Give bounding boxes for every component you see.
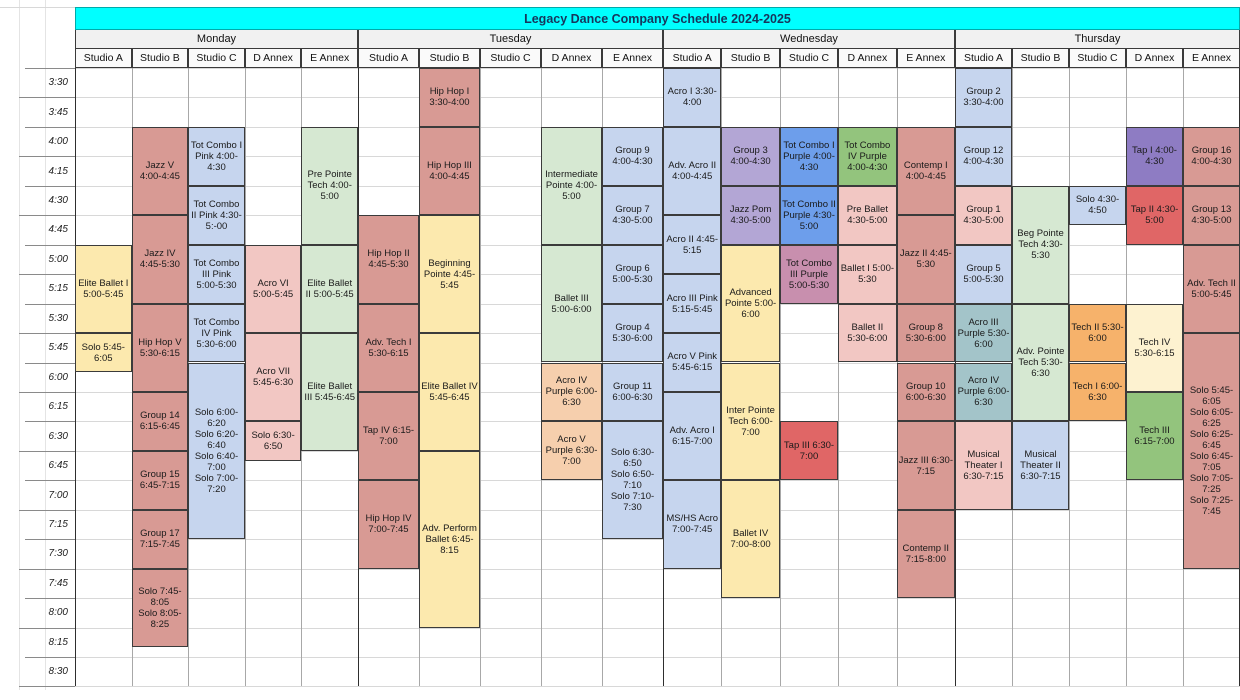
studio-header-monday-3[interactable]: Studio C bbox=[188, 49, 245, 68]
class-block[interactable]: Hip Hop III 4:00-4:45 bbox=[419, 127, 480, 215]
class-block[interactable]: Solo 6:30-6:50 bbox=[245, 421, 302, 460]
time-label[interactable]: 5:45 bbox=[20, 333, 68, 362]
studio-header-wednesday-1[interactable]: Studio A bbox=[663, 49, 721, 68]
class-block[interactable]: Elite Ballet II 5:00-5:45 bbox=[301, 245, 358, 333]
class-block[interactable]: Beginning Pointe 4:45-5:45 bbox=[419, 215, 480, 333]
class-block[interactable]: Group 5 5:00-5:30 bbox=[955, 245, 1012, 304]
class-block[interactable]: Tot Combo IV Purple 4:00-4:30 bbox=[838, 127, 896, 186]
time-label[interactable]: 5:30 bbox=[20, 304, 68, 333]
class-block[interactable]: Advanced Pointe 5:00-6:00 bbox=[721, 245, 779, 363]
class-block[interactable]: Group 9 4:00-4:30 bbox=[602, 127, 663, 186]
class-block[interactable]: Group 3 4:00-4:30 bbox=[721, 127, 779, 186]
class-block[interactable]: Tot Combo IV Pink 5:30-6:00 bbox=[188, 304, 245, 363]
day-header-monday[interactable]: Monday bbox=[75, 30, 358, 49]
class-block[interactable]: Contemp II 7:15-8:00 bbox=[897, 510, 955, 598]
class-block[interactable]: Group 15 6:45-7:15 bbox=[132, 451, 189, 510]
studio-separator bbox=[480, 68, 481, 686]
studio-header-monday-4[interactable]: D Annex bbox=[245, 49, 302, 68]
time-label[interactable]: 5:15 bbox=[20, 274, 68, 303]
class-block[interactable]: Adv. Tech I 5:30-6:15 bbox=[358, 304, 419, 392]
class-block[interactable]: Elite Ballet III 5:45-6:45 bbox=[301, 333, 358, 451]
class-block[interactable]: Group 8 5:30-6:00 bbox=[897, 304, 955, 363]
studio-header-monday-1[interactable]: Studio A bbox=[75, 49, 132, 68]
studio-header-wednesday-5[interactable]: E Annex bbox=[897, 49, 955, 68]
row-line bbox=[75, 569, 1240, 570]
class-block[interactable]: Adv. Acro II 4:00-4:45 bbox=[663, 127, 721, 215]
class-block[interactable]: Tap IV 6:15-7:00 bbox=[358, 392, 419, 480]
class-block[interactable]: Musical Theater II 6:30-7:15 bbox=[1012, 421, 1069, 509]
class-block[interactable]: Tot Combo III Pink 5:00-5:30 bbox=[188, 245, 245, 304]
class-block[interactable]: Acro VII 5:45-6:30 bbox=[245, 333, 302, 421]
class-block[interactable]: Tot Combo II Pink 4:30-5:-00 bbox=[188, 186, 245, 245]
time-label[interactable]: 7:00 bbox=[20, 480, 68, 509]
class-block[interactable]: Acro IV Purple 6:00-6:30 bbox=[541, 363, 602, 422]
class-block[interactable]: Hip Hop V 5:30-6:15 bbox=[132, 304, 189, 392]
class-block[interactable]: Jazz III 6:30-7:15 bbox=[897, 421, 955, 509]
time-label[interactable]: 6:45 bbox=[20, 451, 68, 480]
class-block[interactable]: Jazz V 4:00-4:45 bbox=[132, 127, 189, 215]
class-block[interactable]: Adv. Pointe Tech 5:30-6:30 bbox=[1012, 304, 1069, 422]
class-block[interactable]: Acro V Purple 6:30-7:00 bbox=[541, 421, 602, 480]
row-line bbox=[75, 539, 1240, 540]
time-label[interactable]: 8:00 bbox=[20, 598, 68, 627]
studio-header-tuesday-4[interactable]: D Annex bbox=[541, 49, 602, 68]
class-block[interactable]: Acro III Purple 5:30-6:00 bbox=[955, 304, 1012, 363]
class-block[interactable]: Acro III Pink 5:15-5:45 bbox=[663, 274, 721, 333]
class-block[interactable]: Solo 6:30-6:50 Solo 6:50-7:10 Solo 7:10-… bbox=[602, 421, 663, 539]
class-block[interactable]: Ballet II 5:30-6:00 bbox=[838, 304, 896, 363]
class-block[interactable]: Beg Pointe Tech 4:30-5:30 bbox=[1012, 186, 1069, 304]
time-label[interactable]: 3:30 bbox=[20, 68, 68, 97]
class-block[interactable]: Group 2 3:30-4:00 bbox=[955, 68, 1012, 127]
class-block[interactable]: Acro VI 5:00-5:45 bbox=[245, 245, 302, 333]
day-header-tuesday[interactable]: Tuesday bbox=[358, 30, 663, 49]
row-line bbox=[75, 686, 1240, 687]
studio-header-monday-5[interactable]: E Annex bbox=[301, 49, 358, 68]
class-block[interactable]: Acro I 3:30-4:00 bbox=[663, 68, 721, 127]
studio-header-wednesday-2[interactable]: Studio B bbox=[721, 49, 779, 68]
class-block[interactable]: Ballet III 5:00-6:00 bbox=[541, 245, 602, 363]
time-label[interactable]: 3:45 bbox=[20, 97, 68, 126]
class-block[interactable]: Tech IV 5:30-6:15 bbox=[1126, 304, 1183, 392]
class-block[interactable]: Adv. Tech II 5:00-5:45 bbox=[1183, 245, 1240, 333]
class-block[interactable]: Elite Ballet I 5:00-5:45 bbox=[75, 245, 132, 333]
class-block[interactable]: Group 12 4:00-4:30 bbox=[955, 127, 1012, 186]
row-line bbox=[75, 628, 1240, 629]
class-block[interactable]: Solo 6:00-6:20 Solo 6:20-6:40 Solo 6:40-… bbox=[188, 363, 245, 540]
class-block[interactable]: Jazz IV 4:45-5:30 bbox=[132, 215, 189, 303]
class-block[interactable]: Tech III 6:15-7:00 bbox=[1126, 392, 1183, 480]
class-block[interactable]: Tap I 4:00-4:30 bbox=[1126, 127, 1183, 186]
class-block[interactable]: Contemp I 4:00-4:45 bbox=[897, 127, 955, 215]
time-label[interactable]: 6:00 bbox=[20, 363, 68, 392]
schedule-spreadsheet: Legacy Dance Company Schedule 2024-2025 … bbox=[0, 0, 1240, 700]
row-line bbox=[75, 68, 1240, 69]
class-block[interactable]: Intermediate Pointe 4:00-5:00 bbox=[541, 127, 602, 245]
class-block[interactable]: Acro IV Purple 6:00-6:30 bbox=[955, 363, 1012, 422]
class-block[interactable]: Tap II 4:30-5:00 bbox=[1126, 186, 1183, 245]
time-label[interactable]: 7:45 bbox=[20, 569, 68, 598]
class-block[interactable]: Ballet IV 7:00-8:00 bbox=[721, 480, 779, 598]
class-block[interactable]: Hip Hop II 4:45-5:30 bbox=[358, 215, 419, 303]
class-block[interactable]: Group 14 6:15-6:45 bbox=[132, 392, 189, 451]
class-block[interactable]: Group 13 4:30-5:00 bbox=[1183, 186, 1240, 245]
day-header-wednesday[interactable]: Wednesday bbox=[663, 30, 955, 49]
class-block[interactable]: Acro V Pink 5:45-6:15 bbox=[663, 333, 721, 392]
class-block[interactable]: Tech II 5:30-6:00 bbox=[1069, 304, 1126, 363]
class-block[interactable]: Ballet I 5:00-5:30 bbox=[838, 245, 896, 304]
gutter-line bbox=[0, 7, 75, 8]
class-block[interactable]: Pre Ballet 4:30-5:00 bbox=[838, 186, 896, 245]
class-block[interactable]: Jazz II 4:45-5:30 bbox=[897, 215, 955, 303]
class-block[interactable]: Group 7 4:30-5:00 bbox=[602, 186, 663, 245]
class-block[interactable]: Solo 4:30-4:50 bbox=[1069, 186, 1126, 225]
studio-header-wednesday-3[interactable]: Studio C bbox=[780, 49, 838, 68]
class-block[interactable]: Acro II 4:45-5:15 bbox=[663, 215, 721, 274]
class-block[interactable]: Tot Combo II Purple 4:30-5:00 bbox=[780, 186, 838, 245]
time-label[interactable]: 4:00 bbox=[20, 127, 68, 156]
class-block[interactable]: Hip Hop I 3:30-4:00 bbox=[419, 68, 480, 127]
time-label[interactable]: 4:15 bbox=[20, 156, 68, 185]
studio-header-tuesday-3[interactable]: Studio C bbox=[480, 49, 541, 68]
time-label[interactable]: 5:00 bbox=[20, 245, 68, 274]
class-block[interactable]: Hip Hop IV 7:00-7:45 bbox=[358, 480, 419, 568]
studio-header-thursday-4[interactable]: D Annex bbox=[1126, 49, 1183, 68]
row-line bbox=[75, 97, 1240, 98]
class-block[interactable]: Inter Pointe Tech 6:00-7:00 bbox=[721, 363, 779, 481]
time-label[interactable]: 7:30 bbox=[20, 539, 68, 568]
class-block[interactable]: Solo 5:45-6:05 Solo 6:05-6:25 Solo 6:25-… bbox=[1183, 333, 1240, 569]
class-block[interactable]: Group 10 6:00-6:30 bbox=[897, 363, 955, 422]
class-block[interactable]: Solo 7:45-8:05 Solo 8:05-8:25 bbox=[132, 569, 189, 648]
time-label[interactable]: 4:30 bbox=[20, 186, 68, 215]
time-label[interactable]: 7:15 bbox=[20, 510, 68, 539]
studio-header-thursday-5[interactable]: E Annex bbox=[1183, 49, 1240, 68]
class-block[interactable]: Solo 5:45-6:05 bbox=[75, 333, 132, 372]
class-block[interactable]: Adv. Acro I 6:15-7:00 bbox=[663, 392, 721, 480]
class-block[interactable]: Musical Theater I 6:30-7:15 bbox=[955, 421, 1012, 509]
class-block[interactable]: Tap III 6:30-7:00 bbox=[780, 421, 838, 480]
studio-header-thursday-3[interactable]: Studio C bbox=[1069, 49, 1126, 68]
class-block[interactable]: Tot Combo III Purple 5:00-5:30 bbox=[780, 245, 838, 304]
studio-header-thursday-2[interactable]: Studio B bbox=[1012, 49, 1069, 68]
class-block[interactable]: MS/HS Acro 7:00-7:45 bbox=[663, 480, 721, 568]
class-block[interactable]: Group 16 4:00-4:30 bbox=[1183, 127, 1240, 186]
studio-header-tuesday-5[interactable]: E Annex bbox=[602, 49, 663, 68]
class-block[interactable]: Group 4 5:30-6:00 bbox=[602, 304, 663, 363]
row-line bbox=[75, 598, 1240, 599]
class-block[interactable]: Jazz Pom 4:30-5:00 bbox=[721, 186, 779, 245]
class-block[interactable]: Group 1 4:30-5:00 bbox=[955, 186, 1012, 245]
class-block[interactable]: Elite Ballet IV 5:45-6:45 bbox=[419, 333, 480, 451]
day-header-thursday[interactable]: Thursday bbox=[955, 30, 1240, 49]
class-block[interactable]: Tech I 6:00-6:30 bbox=[1069, 363, 1126, 422]
studio-header-tuesday-2[interactable]: Studio B bbox=[419, 49, 480, 68]
time-label[interactable]: 4:45 bbox=[20, 215, 68, 244]
studio-header-thursday-1[interactable]: Studio A bbox=[955, 49, 1012, 68]
time-label[interactable]: 8:15 bbox=[20, 628, 68, 657]
class-block[interactable]: Adv. Perform Ballet 6:45-8:15 bbox=[419, 451, 480, 628]
time-label[interactable]: 8:30 bbox=[20, 657, 68, 686]
time-label[interactable]: 6:15 bbox=[20, 392, 68, 421]
time-label[interactable]: 6:30 bbox=[20, 421, 68, 450]
class-block[interactable]: Group 17 7:15-7:45 bbox=[132, 510, 189, 569]
class-block[interactable]: Group 6 5:00-5:30 bbox=[602, 245, 663, 304]
studio-header-tuesday-1[interactable]: Studio A bbox=[358, 49, 419, 68]
schedule-title[interactable]: Legacy Dance Company Schedule 2024-2025 bbox=[75, 7, 1240, 30]
class-block[interactable]: Group 11 6:00-6:30 bbox=[602, 363, 663, 422]
class-block[interactable]: Tot Combo I Pink 4:00-4:30 bbox=[188, 127, 245, 186]
row-line bbox=[75, 657, 1240, 658]
class-block[interactable]: Tot Combo I Purple 4:00-4:30 bbox=[780, 127, 838, 186]
studio-header-wednesday-4[interactable]: D Annex bbox=[838, 49, 896, 68]
studio-header-monday-2[interactable]: Studio B bbox=[132, 49, 189, 68]
class-block[interactable]: Pre Pointe Tech 4:00-5:00 bbox=[301, 127, 358, 245]
time-row-line bbox=[19, 686, 75, 687]
